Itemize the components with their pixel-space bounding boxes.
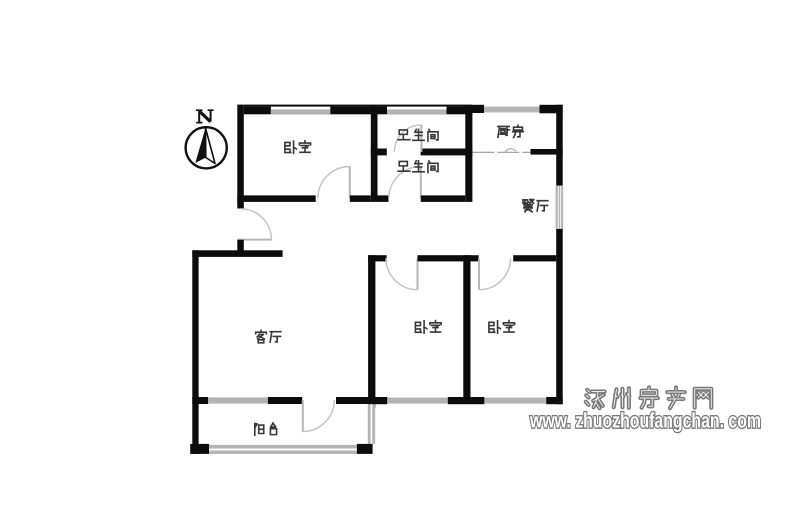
- svg-text:www. zhuozhoufangchan. com: www. zhuozhoufangchan. com: [529, 410, 761, 433]
